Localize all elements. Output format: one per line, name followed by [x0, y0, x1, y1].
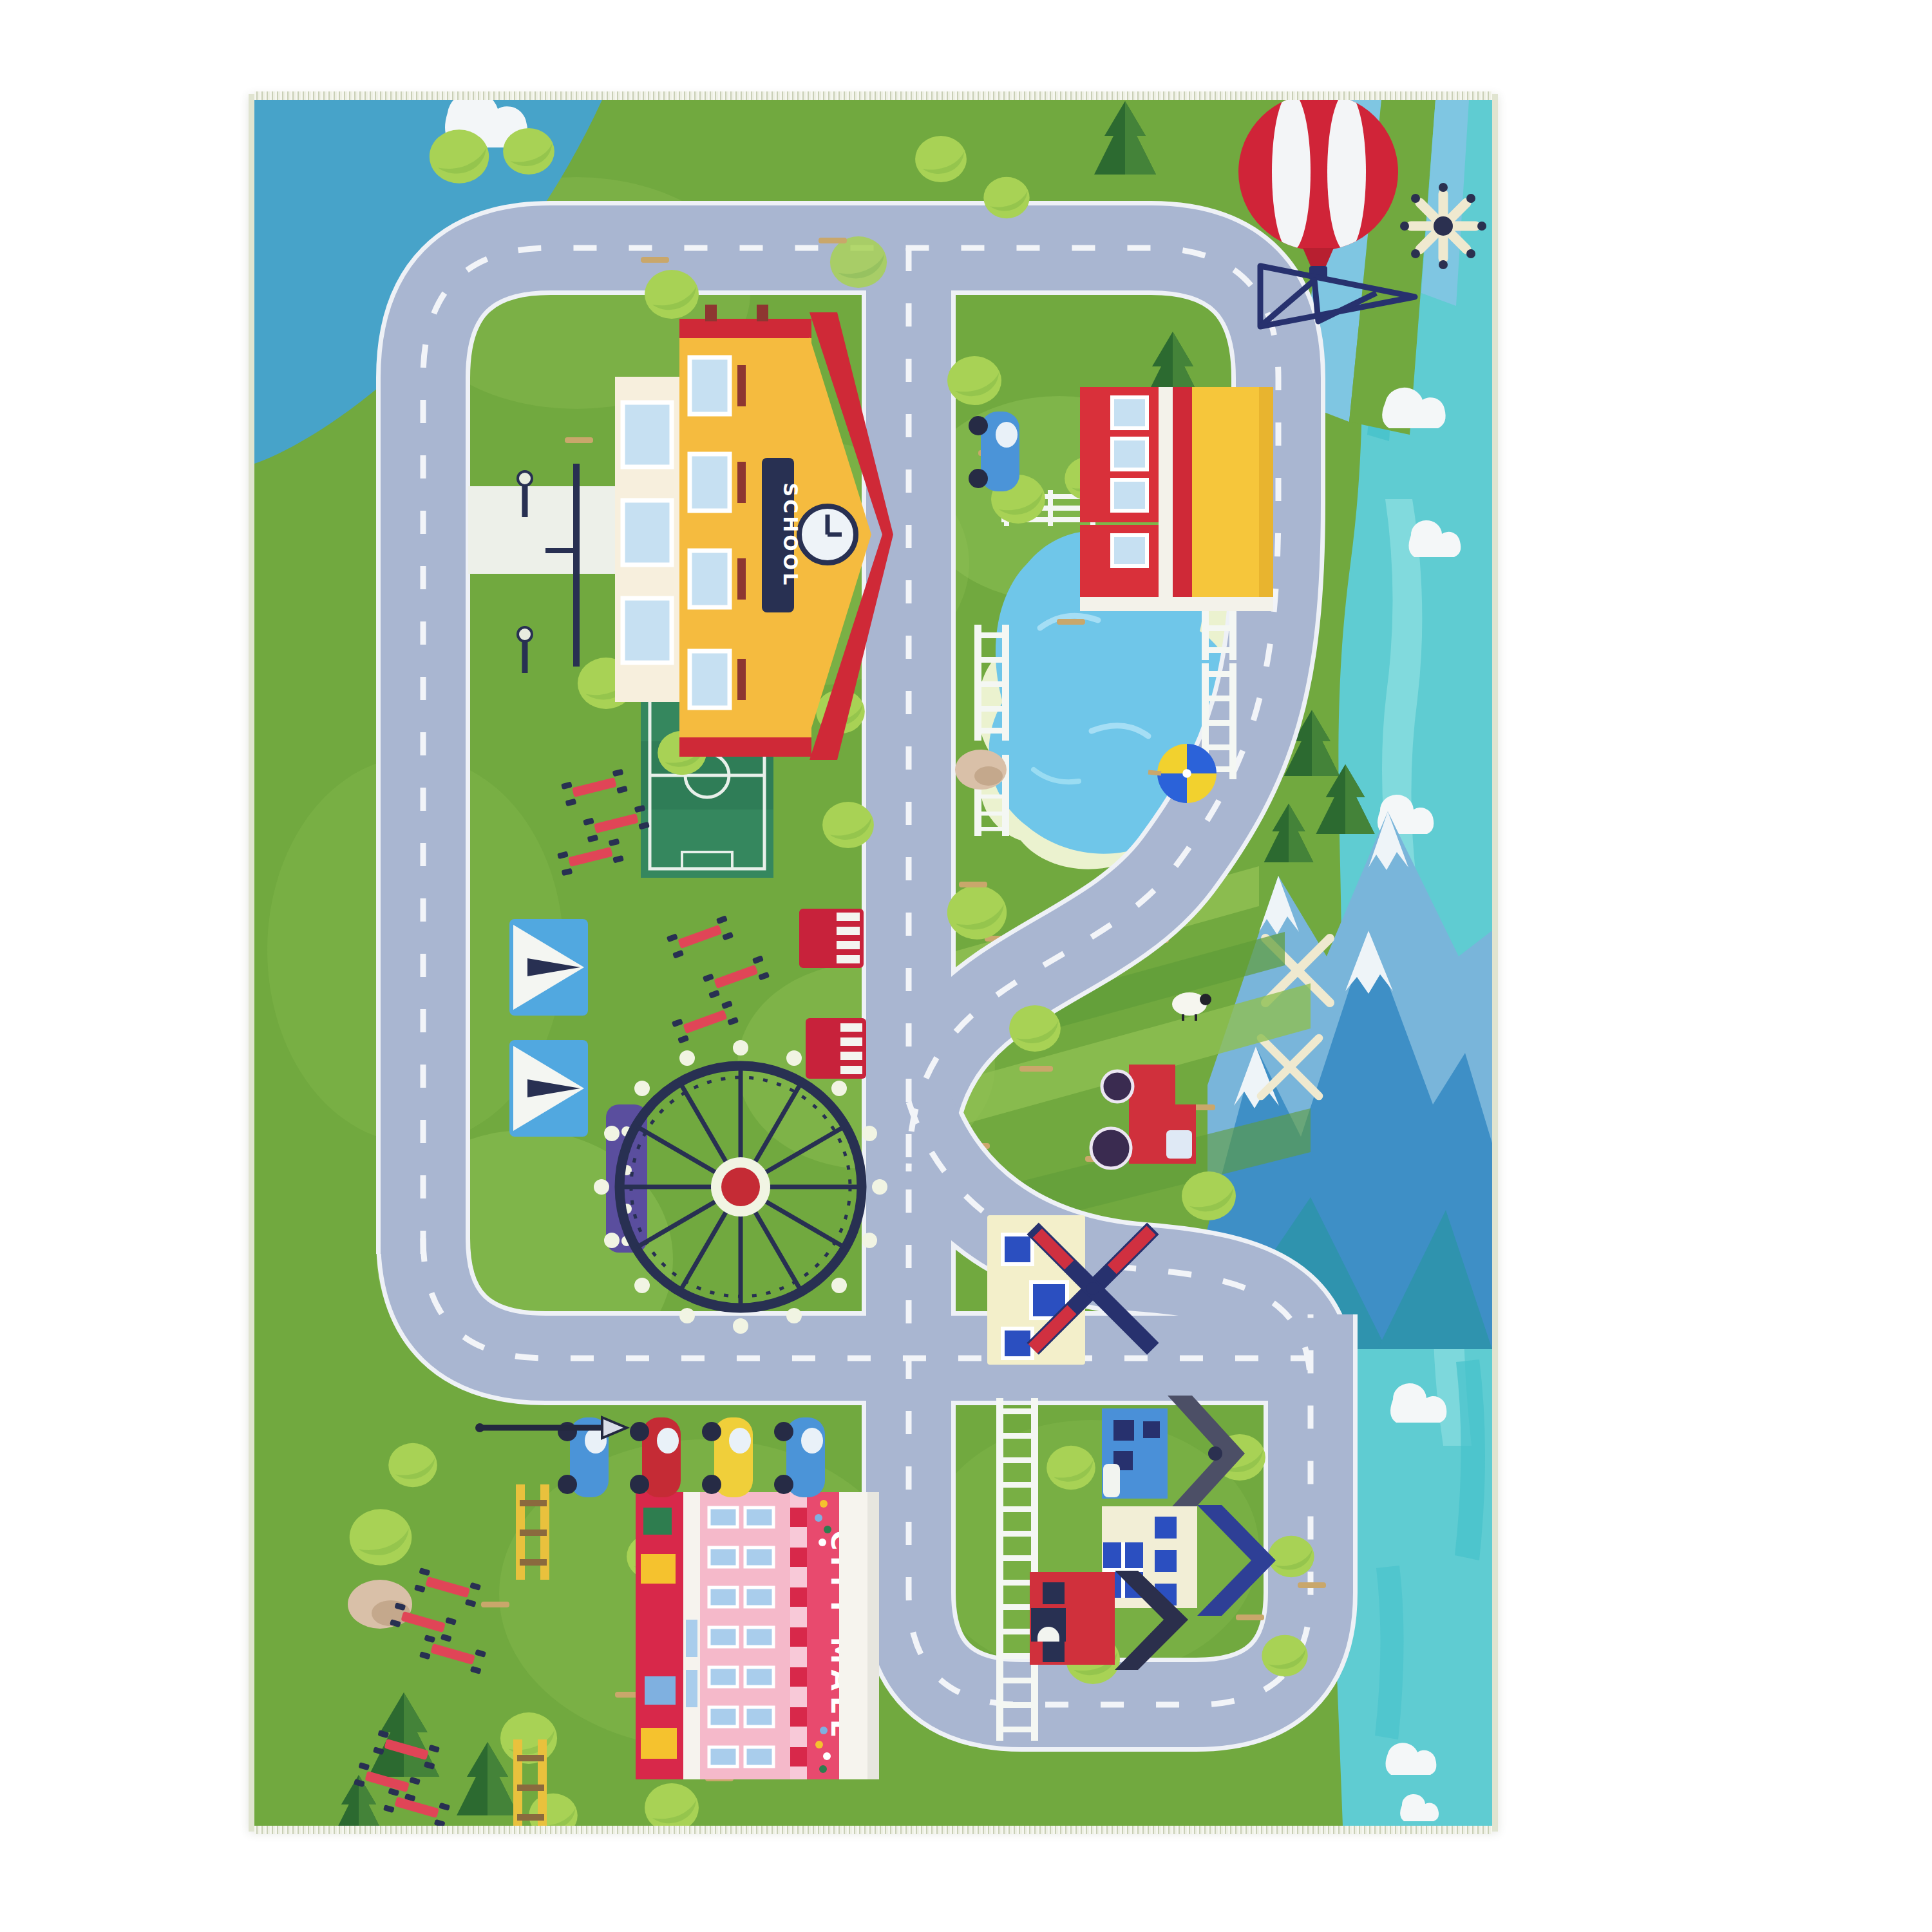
dandelion-flower-icon: [1400, 183, 1486, 269]
rug-fringe-bottom: [254, 1826, 1492, 1834]
school-path: [468, 486, 623, 574]
food-stand-icon: [799, 909, 864, 968]
circus-tent-icon: [509, 1040, 588, 1137]
play-rug: SCHOOL: [249, 94, 1498, 1832]
rug-artwork: SCHOOL: [254, 100, 1492, 1826]
product-photo: SCHOOL: [0, 0, 1932, 1932]
ferris-wheel: [594, 1040, 887, 1334]
city-mall-building: CITY MALL: [636, 1492, 879, 1779]
circus-tent-icon: [509, 919, 588, 1016]
food-stand-icon: [806, 1018, 866, 1079]
rug-fringe-top: [254, 91, 1492, 100]
school-sign-label: SCHOOL: [779, 483, 802, 588]
